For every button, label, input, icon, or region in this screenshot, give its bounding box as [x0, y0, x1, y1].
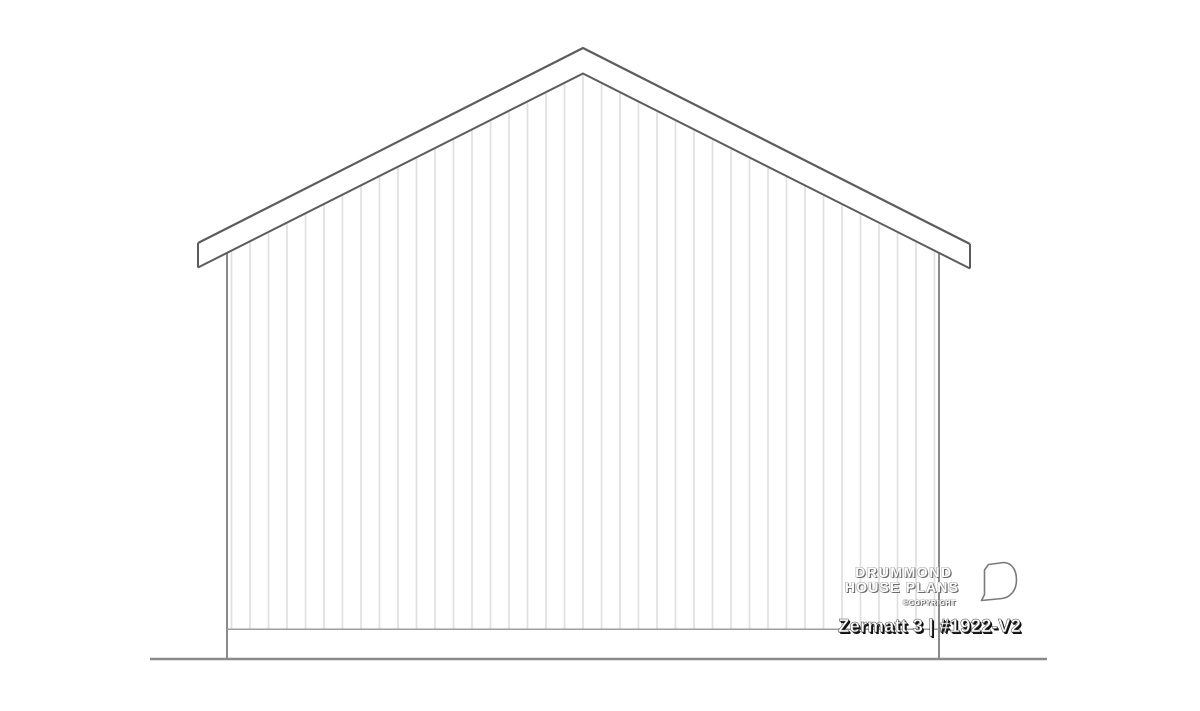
roof-outer-edge — [198, 48, 970, 244]
siding-lines — [232, 75, 935, 630]
elevation-sheet: DRUMMOND HOUSE PLANS ©COPYRIGHT Zermatt … — [0, 0, 1200, 711]
roof-inner-edge — [198, 74, 970, 269]
elevation-drawing — [0, 0, 1200, 711]
